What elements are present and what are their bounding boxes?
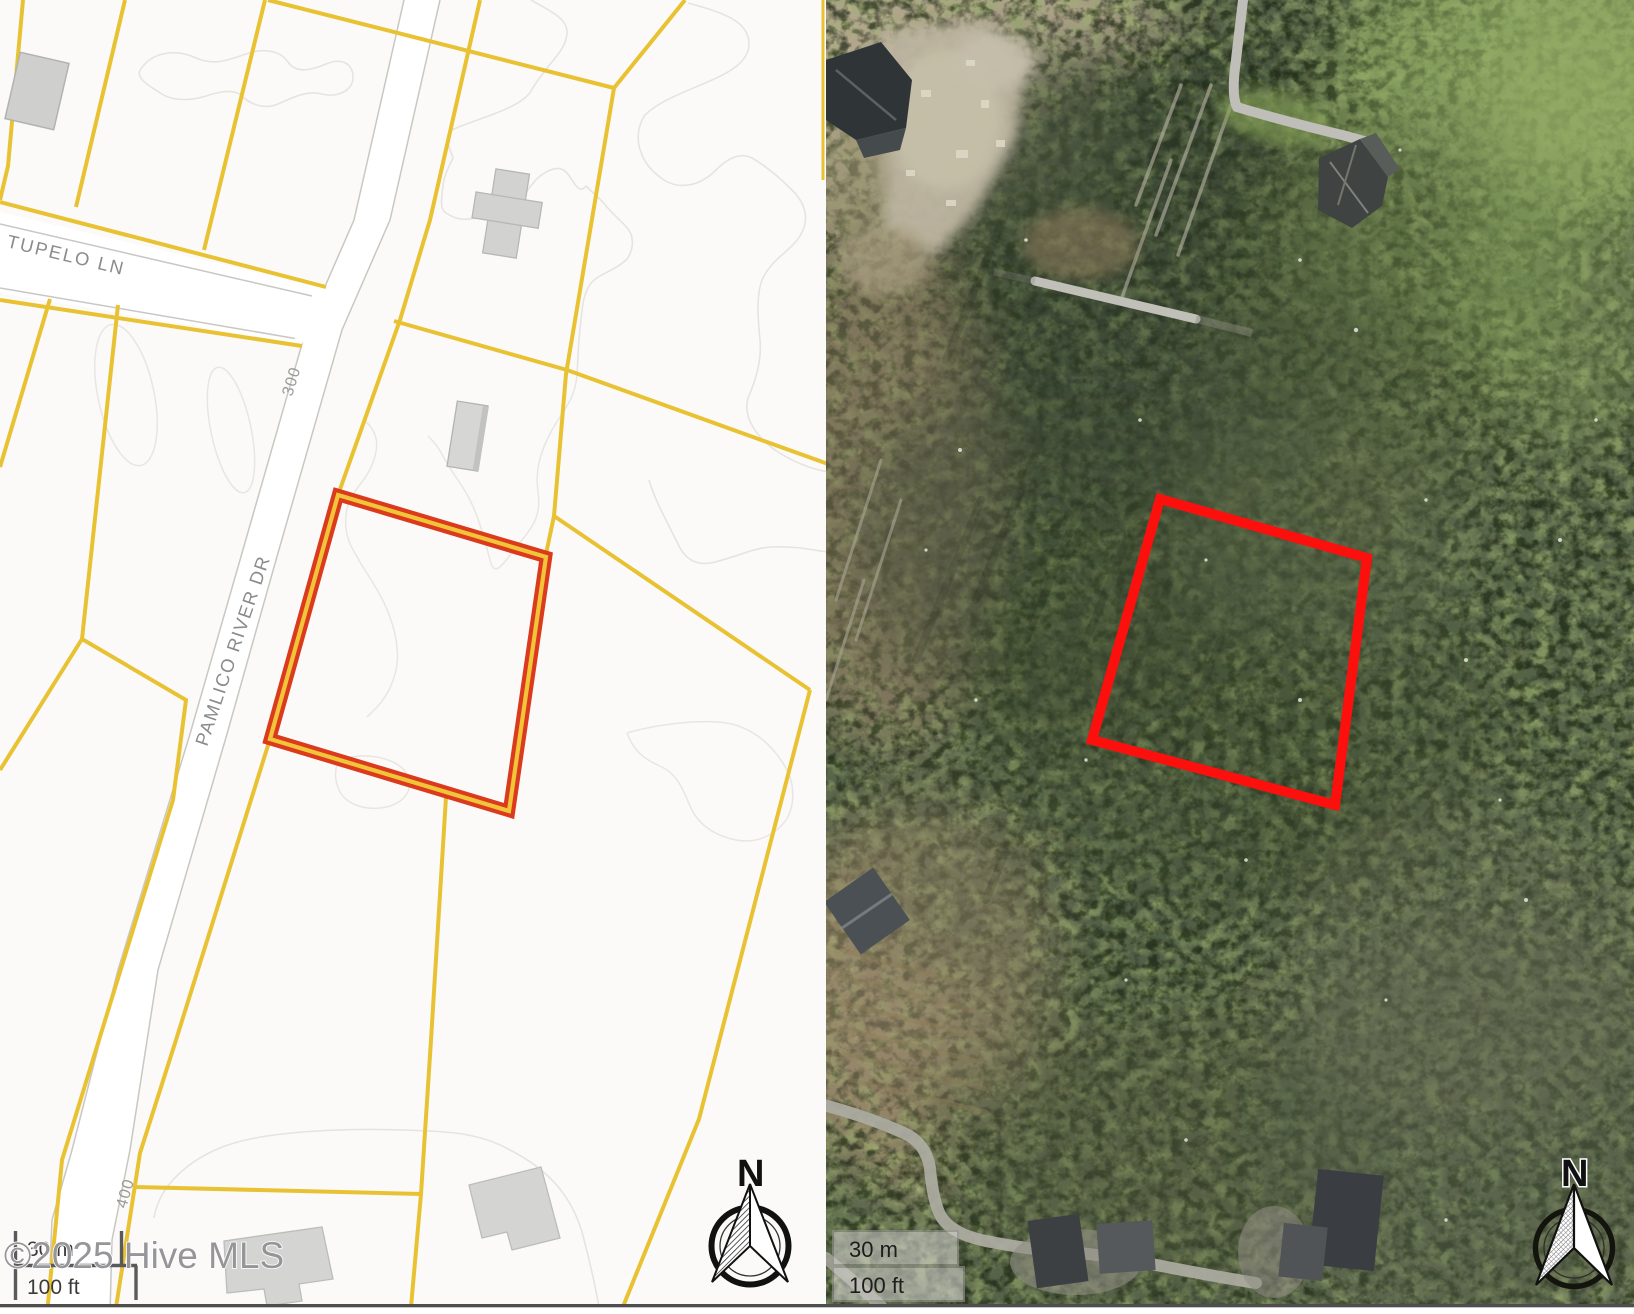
svg-text:N: N	[1561, 1153, 1588, 1195]
svg-text:100 ft: 100 ft	[27, 1276, 80, 1299]
svg-text:©2025 Hive MLS: ©2025 Hive MLS	[4, 1235, 284, 1276]
svg-text:N: N	[737, 1153, 764, 1195]
svg-text:100 ft: 100 ft	[849, 1273, 904, 1298]
svg-text:30 m: 30 m	[849, 1237, 898, 1262]
